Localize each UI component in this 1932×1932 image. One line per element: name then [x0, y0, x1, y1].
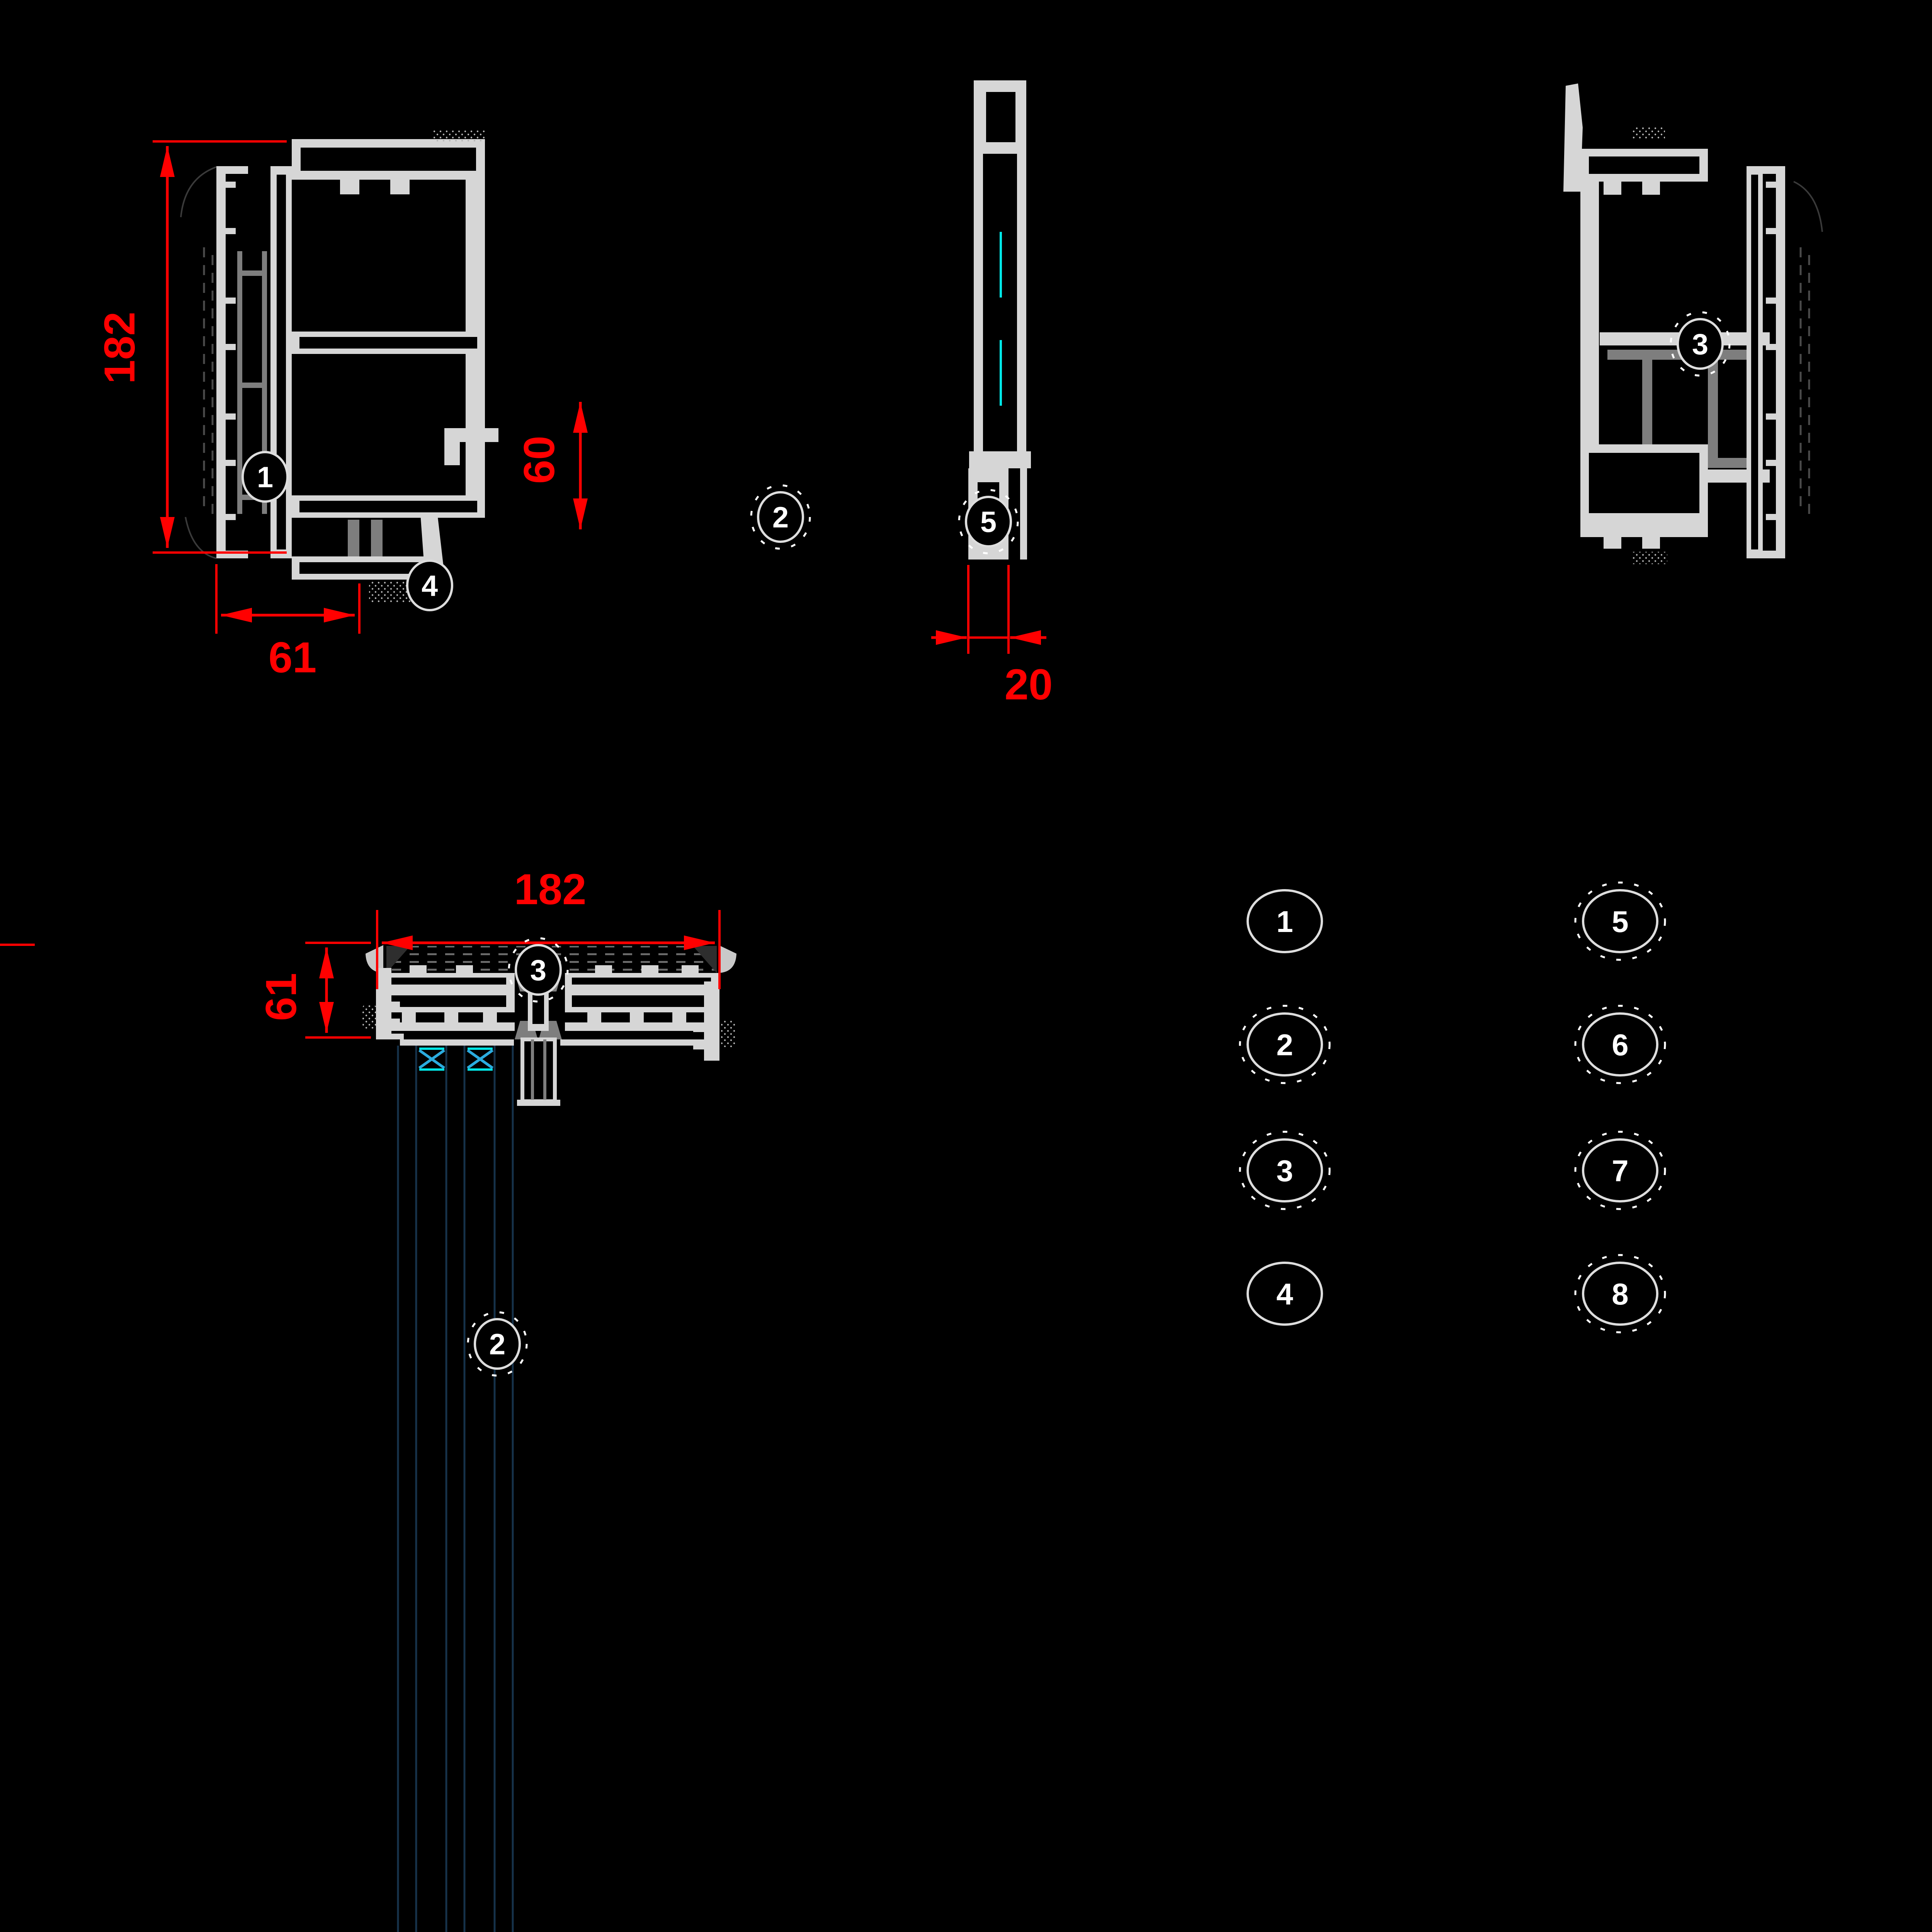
plan-section-drawing: 182 61 3: [0, 865, 736, 1106]
callout-3-badge-jamb: 3: [1671, 312, 1730, 376]
dim-label-60: 60: [515, 436, 563, 484]
svg-text:7: 7: [1612, 1154, 1628, 1188]
frame-anchor-profile: [1747, 166, 1785, 558]
svg-text:2: 2: [1276, 1028, 1293, 1062]
svg-text:3: 3: [530, 954, 546, 987]
svg-text:5: 5: [1612, 905, 1628, 939]
legend-item-2: 2: [1240, 1006, 1330, 1083]
dim-label-61: 61: [269, 633, 317, 682]
legend: 1 2 3 4 5 6 7: [1240, 883, 1665, 1332]
dim-label-182-plan: 182: [514, 865, 587, 913]
channel-wall-right: [1017, 154, 1026, 451]
foam-hatch: [432, 130, 486, 141]
svg-text:6: 6: [1612, 1028, 1628, 1062]
transom-profile-lower: [292, 495, 485, 518]
rain-fin: [1563, 83, 1583, 192]
head-section-drawing: 182 61 60 1 4 2: [95, 130, 810, 682]
legend-item-8: 8: [1575, 1255, 1665, 1332]
jamb-section-drawing: 3: [1563, 83, 1822, 564]
dim-20-horizontal: 20: [931, 565, 1053, 709]
legend-item-1: 1: [1248, 890, 1322, 952]
svg-text:3: 3: [1276, 1154, 1293, 1188]
dim-label-182: 182: [95, 312, 144, 384]
legend-item-4: 4: [1248, 1263, 1322, 1325]
gasket-hatch: [362, 1004, 376, 1029]
wall-break-arc: [1794, 182, 1822, 232]
legend-item-5: 5: [1575, 883, 1665, 960]
callout-2-badge-glass: 2: [468, 1312, 527, 1376]
callout-4-badge: 4: [407, 561, 452, 610]
cover-profile-drawing: 5 20: [931, 80, 1053, 709]
foam-hatch: [1633, 552, 1667, 564]
svg-text:1: 1: [257, 461, 273, 494]
drawing-canvas: 182 61 60 1 4 2: [0, 0, 1932, 1932]
svg-text:2: 2: [772, 501, 789, 534]
lower-frame-box: [1580, 444, 1708, 564]
head-profile: [1580, 127, 1708, 195]
channel-wall-left: [974, 154, 983, 451]
wall-break-arc: [181, 167, 216, 217]
svg-text:5: 5: [980, 506, 997, 539]
dim-60-vertical: 60: [515, 402, 580, 529]
dim-label-61-plan: 61: [257, 973, 305, 1021]
dim-label-20: 20: [1005, 660, 1053, 709]
dim-61-plan: 61: [0, 943, 371, 1037]
glass-unit: 2: [398, 1046, 527, 1932]
dim-61-horizontal: 61: [216, 564, 359, 682]
transom-profile-upper: [292, 332, 485, 354]
svg-text:2: 2: [489, 1328, 505, 1361]
foam-hatch: [1633, 127, 1665, 139]
legend-item-3: 3: [1240, 1132, 1330, 1209]
cap-plate: [969, 451, 1031, 468]
side-wall: [1020, 468, 1027, 560]
spacer-symbol-top: [419, 1049, 493, 1070]
svg-text:4: 4: [1276, 1277, 1293, 1311]
callout-5-badge: 5: [959, 490, 1018, 553]
callout-1-badge: 1: [243, 452, 287, 502]
drawing-sheet: 182 61 60 1 4 2: [0, 0, 1932, 1932]
gasket-hatch: [721, 1020, 736, 1047]
legend-item-7: 7: [1575, 1132, 1665, 1209]
legend-item-6: 6: [1575, 1006, 1665, 1083]
svg-text:3: 3: [1692, 328, 1708, 361]
svg-text:8: 8: [1612, 1277, 1628, 1311]
svg-text:1: 1: [1276, 905, 1293, 939]
callout-2-badge: 2: [751, 485, 810, 549]
svg-text:4: 4: [422, 570, 438, 602]
head-profile: [292, 130, 486, 194]
